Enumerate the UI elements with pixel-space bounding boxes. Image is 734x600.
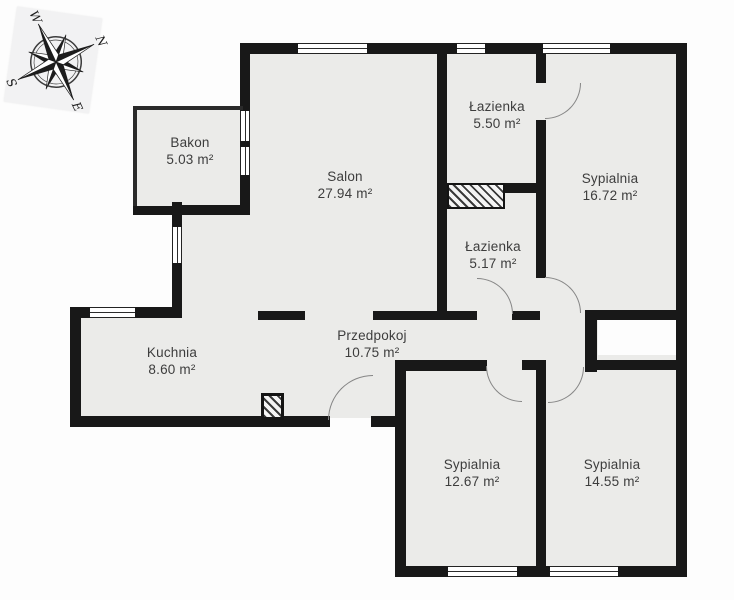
floor-plan: Bakon 5.03 m² Salon 27.94 m² Łazienka 5.… <box>0 0 734 600</box>
wall <box>536 54 546 83</box>
wall <box>70 416 330 427</box>
wall <box>512 311 540 320</box>
room-label-lazienka-2: Łazienka 5.17 m² <box>437 238 549 272</box>
room-area: 8.60 m² <box>116 361 228 378</box>
wall <box>172 205 250 215</box>
window <box>298 43 367 54</box>
wall <box>133 206 182 215</box>
compass-s-label: S <box>3 76 19 89</box>
wall <box>437 43 447 320</box>
window <box>172 227 182 263</box>
window <box>550 566 618 577</box>
room-area: 10.75 m² <box>316 344 428 361</box>
wall <box>395 360 406 577</box>
wall <box>395 566 687 577</box>
room-label-przedpokoj: Przedpokoj 10.75 m² <box>316 327 428 361</box>
room-label-sypialnia-3: Sypialnia 14.55 m² <box>556 456 668 490</box>
wall <box>597 360 677 370</box>
floor-area <box>177 210 250 320</box>
room-area: 12.67 m² <box>416 473 528 490</box>
room-area: 5.17 m² <box>437 255 549 272</box>
compass-rose-graphic: N E S W <box>0 6 112 118</box>
balcony-rail <box>133 106 243 110</box>
compass-rose-icon: N E S W <box>0 4 116 120</box>
room-label-kuchnia: Kuchnia 8.60 m² <box>116 344 228 378</box>
room-name: Sypialnia <box>554 170 666 187</box>
room-name: Sypialnia <box>416 456 528 473</box>
room-label-salon: Salon 27.94 m² <box>289 168 401 202</box>
room-label-sypialnia-2: Sypialnia 12.67 m² <box>416 456 528 490</box>
room-area: 5.03 m² <box>134 151 246 168</box>
compass-e-label: E <box>69 99 86 114</box>
room-name: Łazienka <box>441 98 553 115</box>
room-area: 14.55 m² <box>556 473 668 490</box>
window <box>457 43 485 54</box>
wall <box>70 307 81 427</box>
room-name: Sypialnia <box>556 456 668 473</box>
wall <box>258 311 305 320</box>
compass-n-label: N <box>92 32 110 49</box>
window <box>90 307 135 318</box>
room-name: Kuchnia <box>116 344 228 361</box>
room-area: 27.94 m² <box>289 185 401 202</box>
room-label-bakon: Bakon 5.03 m² <box>134 134 246 168</box>
wall <box>371 416 406 427</box>
wall <box>536 360 546 566</box>
window <box>448 566 517 577</box>
room-name: Bakon <box>134 134 246 151</box>
room-name: Salon <box>289 168 401 185</box>
shaft-hatch <box>447 183 505 209</box>
room-label-sypialnia-1: Sypialnia 16.72 m² <box>554 170 666 204</box>
wall <box>373 311 447 320</box>
wall <box>585 310 676 320</box>
pillar-hatch <box>261 393 284 420</box>
window <box>543 43 610 54</box>
room-area: 16.72 m² <box>554 187 666 204</box>
room-label-lazienka-1: Łazienka 5.50 m² <box>441 98 553 132</box>
wall <box>400 360 487 371</box>
wall <box>676 43 687 577</box>
room-name: Przedpokoj <box>316 327 428 344</box>
wall <box>585 310 597 372</box>
compass-w-label: W <box>26 8 45 27</box>
wall <box>447 311 477 320</box>
room-name: Łazienka <box>437 238 549 255</box>
room-area: 5.50 m² <box>441 115 553 132</box>
